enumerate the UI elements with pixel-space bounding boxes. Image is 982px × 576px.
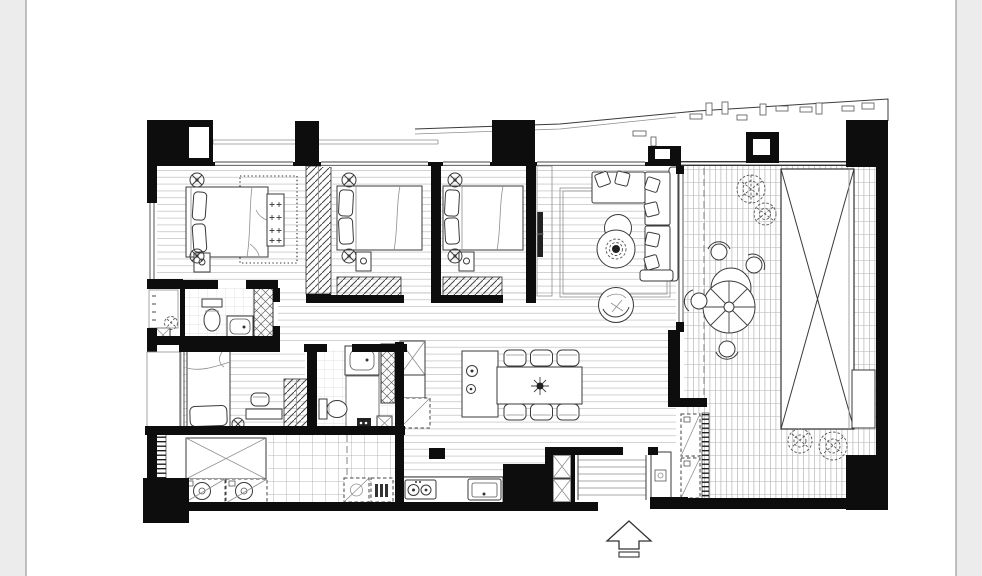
nightstand bbox=[356, 252, 371, 271]
desk bbox=[246, 409, 282, 419]
washer-icon bbox=[184, 479, 225, 503]
dishwasher-dashed bbox=[344, 478, 369, 504]
dryer-icon bbox=[226, 479, 267, 503]
wardrobe-corridor bbox=[306, 166, 331, 294]
column bbox=[846, 120, 888, 167]
vanity-sink-icon bbox=[227, 316, 253, 337]
ac-outdoor-unit bbox=[681, 414, 700, 456]
tall-cabinet-block bbox=[503, 464, 547, 507]
toilet-icon bbox=[319, 399, 347, 419]
single-bed bbox=[187, 349, 230, 433]
undercounter-appliance-dashed bbox=[371, 478, 393, 502]
terrace-bench bbox=[852, 370, 875, 428]
double-bed bbox=[443, 186, 523, 250]
column bbox=[143, 478, 189, 523]
desk-chair bbox=[251, 393, 269, 406]
column bbox=[295, 121, 319, 162]
double-bed bbox=[337, 186, 422, 250]
kitchen-sink bbox=[468, 479, 501, 500]
shower-strip bbox=[381, 344, 395, 403]
shower-stall bbox=[254, 283, 273, 340]
armchair bbox=[599, 288, 634, 323]
ac-outdoor-unit bbox=[681, 458, 700, 498]
floor-plan-image bbox=[0, 0, 982, 576]
floor-plan-canvas bbox=[0, 0, 982, 576]
vent-rung-strip bbox=[702, 413, 709, 500]
nightstand bbox=[459, 252, 474, 271]
service-shaft-x bbox=[553, 455, 571, 502]
storage-counter-x bbox=[186, 438, 266, 479]
planter-x-feature bbox=[781, 169, 854, 429]
wardrobe bbox=[337, 277, 401, 297]
column bbox=[846, 455, 888, 510]
toilet-icon bbox=[202, 299, 222, 331]
island-counter bbox=[462, 351, 498, 417]
wardrobe bbox=[284, 379, 309, 431]
double-bed bbox=[186, 187, 268, 257]
wardrobe bbox=[443, 277, 502, 297]
window bbox=[148, 203, 156, 279]
cooktop bbox=[405, 480, 436, 499]
column bbox=[492, 120, 535, 162]
refrigerator-dashed bbox=[400, 398, 430, 428]
shoe-cabinet bbox=[651, 452, 671, 502]
vent-rung-strip bbox=[156, 433, 166, 478]
bed-bench bbox=[267, 194, 284, 246]
